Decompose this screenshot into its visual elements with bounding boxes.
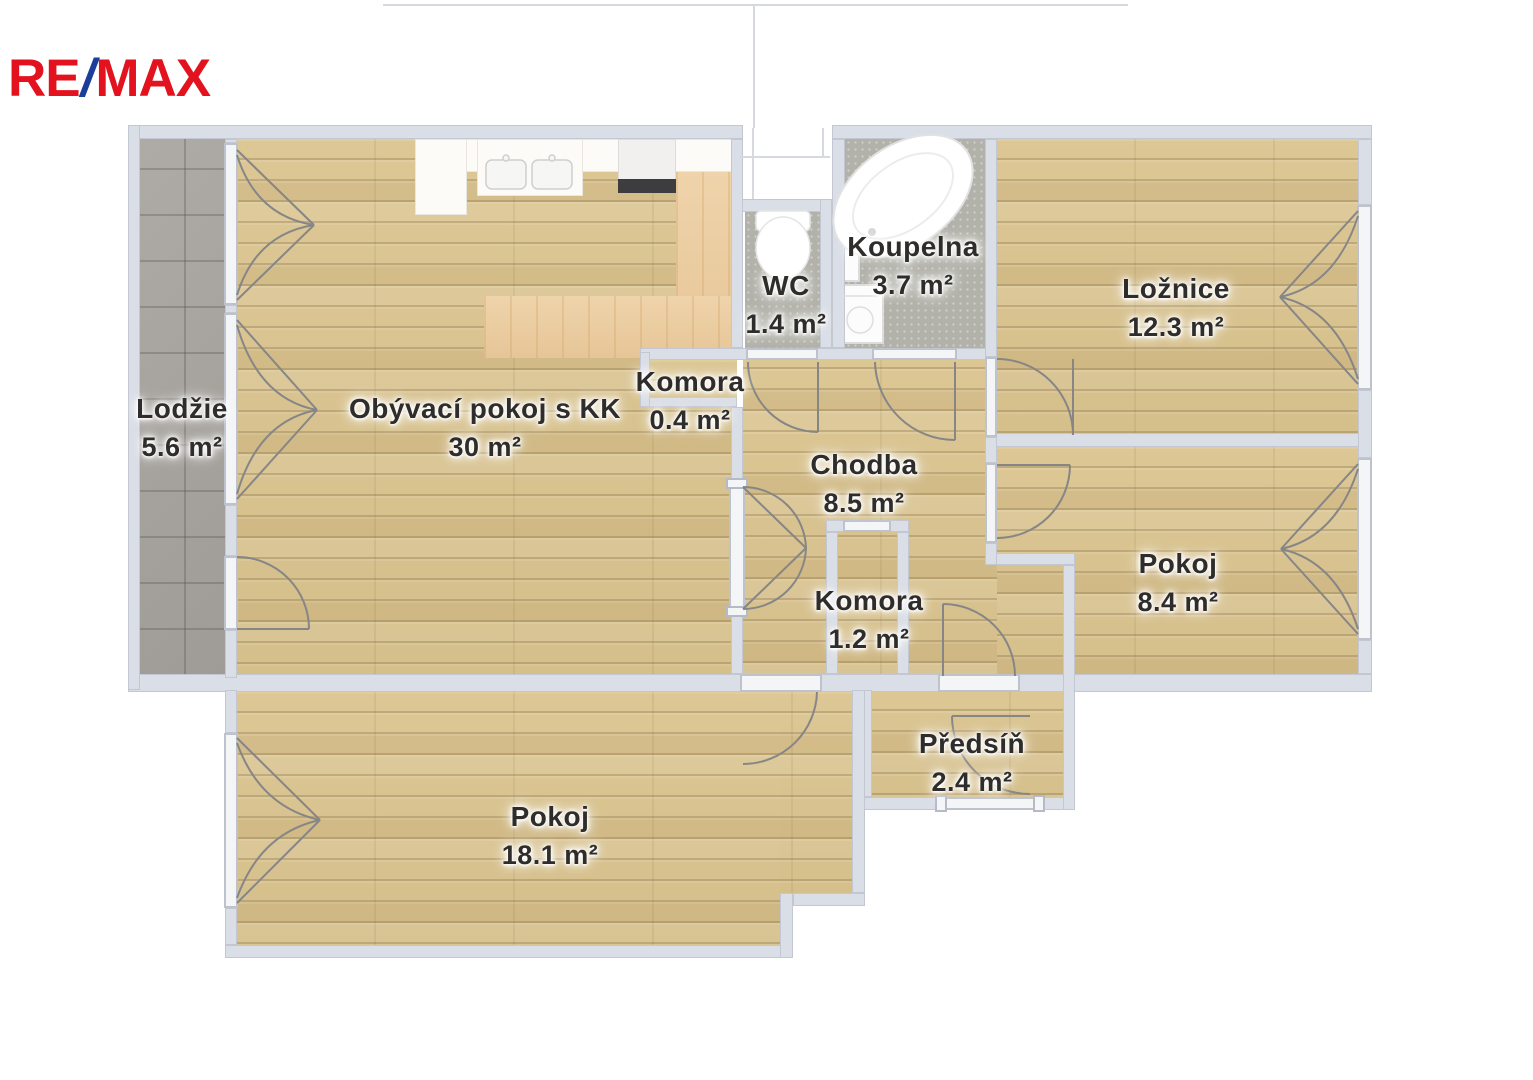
- room-label-komora-mala: Komora 0.4 m²: [636, 362, 745, 440]
- room-name: Pokoj: [502, 797, 599, 836]
- room-label-lodzie: Lodžie 5.6 m²: [136, 389, 228, 467]
- room-name: Předsíň: [919, 724, 1025, 763]
- swing-entry-hall-door: [943, 604, 1015, 676]
- room-name: Chodba: [810, 445, 917, 484]
- swing-bedroom-door: [997, 359, 1073, 435]
- room-name: Ložnice: [1122, 269, 1230, 308]
- room-area: 5.6 m²: [136, 428, 228, 467]
- casement-balcony-2: [237, 320, 317, 499]
- swing-wc-door: [748, 362, 818, 432]
- floor-plan-page: RE/MAX: [0, 0, 1533, 1080]
- casement-balcony-1: [237, 150, 314, 300]
- room-label-koupelna: Koupelna 3.7 m²: [847, 227, 979, 305]
- room-name: Komora: [815, 581, 924, 620]
- room-name: Koupelna: [847, 227, 979, 266]
- room-name: WC: [745, 266, 826, 305]
- swing-big-room-door: [743, 692, 817, 764]
- room-label-chodba: Chodba 8.5 m²: [810, 445, 917, 523]
- room-area: 3.7 m²: [847, 266, 979, 305]
- room-area: 30 m²: [349, 428, 621, 467]
- room-area: 1.4 m²: [745, 305, 826, 344]
- room-area: 1.2 m²: [815, 620, 924, 659]
- casement-small-room: [1281, 464, 1358, 634]
- room-area: 12.3 m²: [1122, 308, 1230, 347]
- room-label-pokoj-velky: Pokoj 18.1 m²: [502, 797, 599, 875]
- room-label-pokoj-maly: Pokoj 8.4 m²: [1137, 544, 1218, 622]
- room-label-wc: WC 1.4 m²: [745, 266, 826, 344]
- room-area: 0.4 m²: [636, 401, 745, 440]
- room-label-obyvaci-pokoj: Obývací pokoj s KK 30 m²: [349, 389, 621, 467]
- swing-bathroom-door: [875, 362, 955, 440]
- casement-big-room: [237, 738, 320, 903]
- room-area: 18.1 m²: [502, 836, 599, 875]
- room-label-loznice: Ložnice 12.3 m²: [1122, 269, 1230, 347]
- room-area: 8.5 m²: [810, 484, 917, 523]
- room-area: 2.4 m²: [919, 763, 1025, 802]
- kitchen-sink-icon: [486, 155, 572, 189]
- casement-bedroom: [1280, 211, 1358, 384]
- room-name: Obývací pokoj s KK: [349, 389, 621, 428]
- room-label-predsin: Předsíň 2.4 m²: [919, 724, 1025, 802]
- swing-living-double-door: [743, 487, 806, 609]
- room-name: Komora: [636, 362, 745, 401]
- plan-linework: [0, 0, 1533, 1080]
- swing-small-room-door: [997, 465, 1070, 538]
- room-name: Lodžie: [136, 389, 228, 428]
- room-label-komora: Komora 1.2 m²: [815, 581, 924, 659]
- swing-balcony-door: [237, 557, 309, 629]
- room-name: Pokoj: [1137, 544, 1218, 583]
- room-area: 8.4 m²: [1137, 583, 1218, 622]
